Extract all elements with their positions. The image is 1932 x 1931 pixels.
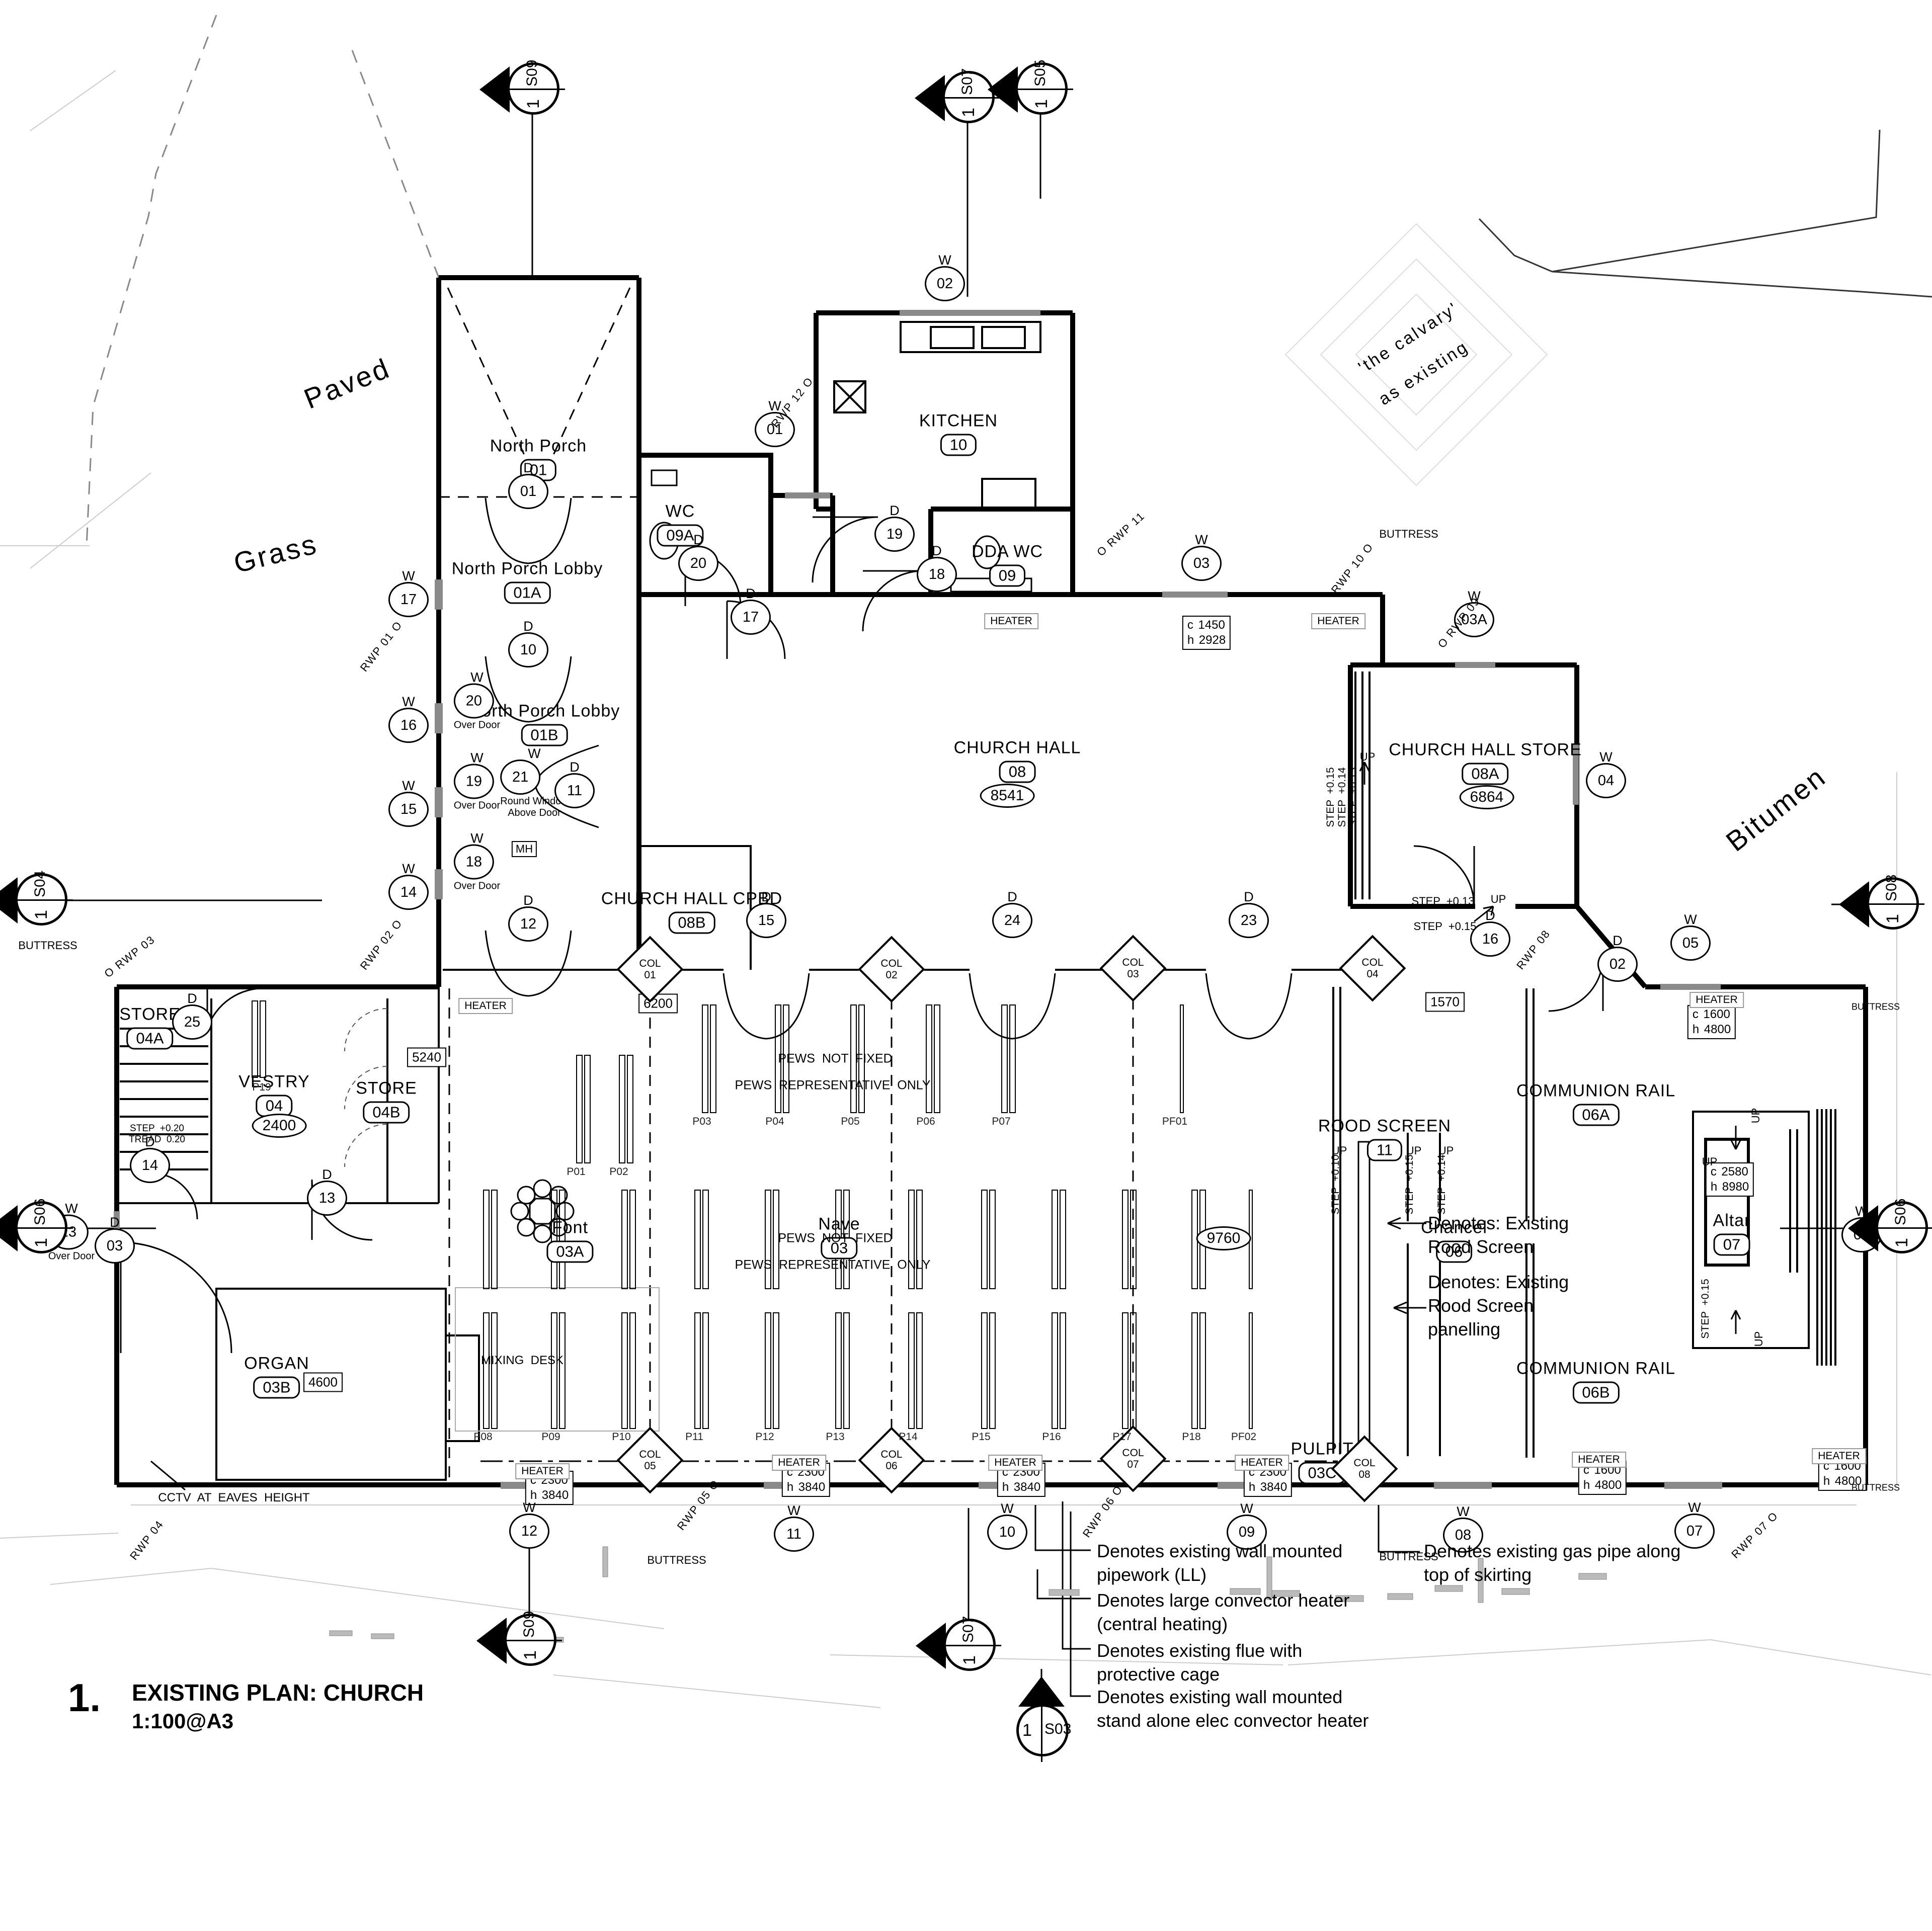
room-label: VESTRY04 <box>238 1072 309 1117</box>
pew <box>492 1190 497 1289</box>
column-marker: COL03 <box>1109 945 1157 992</box>
door-marker: D18 <box>917 545 957 592</box>
pew <box>492 1313 497 1429</box>
section-number: 1 <box>524 99 543 109</box>
room-label: COMMUNION RAIL06B <box>1516 1359 1675 1404</box>
window-number: 03 <box>1181 546 1222 581</box>
door-letter: D <box>95 1216 135 1228</box>
pew <box>627 1055 633 1163</box>
heater-label: HEATER <box>1689 992 1744 1008</box>
pew <box>836 1313 841 1429</box>
note-text: TREAD 0.20 <box>129 1134 185 1145</box>
note-text: PEWS REPRESENTATIVE ONLY <box>735 1078 931 1093</box>
window-marker: W10 <box>987 1502 1027 1550</box>
room-tag: 11 <box>1367 1139 1402 1161</box>
room-label: STORE04A <box>119 1005 181 1050</box>
section-number: 1 <box>1883 914 1903 923</box>
pew <box>1052 1313 1058 1429</box>
note-text: CCTV AT EAVES HEIGHT <box>158 1491 309 1505</box>
window-letter: W <box>454 671 500 684</box>
room-label: STORE04B <box>356 1079 417 1124</box>
pew <box>703 1313 708 1429</box>
door-marker: D19 <box>874 505 915 552</box>
window-number: 21 <box>500 760 540 795</box>
door-number: 17 <box>731 600 771 635</box>
pew <box>1060 1313 1066 1429</box>
door-number: 12 <box>508 906 548 942</box>
room-name: North Porch <box>490 437 587 456</box>
window-marker: W18Over Door <box>454 832 500 892</box>
window-marker: W14 <box>388 863 429 910</box>
note-text: STEP +0.15 <box>1700 1279 1712 1338</box>
window-marker: W02 <box>925 254 965 301</box>
section-sheet: S09 <box>521 1611 538 1638</box>
room-tag: 01B <box>521 724 568 746</box>
room-name: DDA WC <box>972 542 1043 562</box>
ch-dimension-box: c 1450h 2928 <box>1182 616 1231 650</box>
note-text: BUTTRESS <box>18 939 77 952</box>
pew <box>982 1313 987 1429</box>
door-number: 11 <box>554 773 595 808</box>
window-marker: W16 <box>388 696 429 743</box>
pew <box>252 1001 258 1077</box>
pew-label: P12 <box>755 1431 774 1443</box>
window-marker: W15 <box>388 780 429 827</box>
section-divider <box>500 89 565 90</box>
window-number: 10 <box>987 1515 1027 1550</box>
room-name: KITCHEN <box>919 411 998 431</box>
window-marker: W03 <box>1181 534 1222 581</box>
section-sheet: S06 <box>32 1199 49 1225</box>
pew <box>982 1190 987 1289</box>
column-marker: COL05 <box>626 1437 674 1484</box>
note-text: PEWS REPRESENTATIVE ONLY <box>735 1258 931 1273</box>
note-text: STEP +0.14 <box>1436 1154 1448 1214</box>
room-label: CHURCH HALL08 <box>954 738 1081 783</box>
column-marker: COL08 <box>1341 1445 1388 1492</box>
section-marker: 1S07 <box>916 1616 1021 1676</box>
pew <box>703 1190 708 1289</box>
pew <box>630 1190 635 1289</box>
window-letter: W <box>388 696 429 708</box>
area-oval: 6864 <box>1460 785 1514 809</box>
pew <box>926 1005 932 1113</box>
door-marker: D25 <box>172 992 212 1040</box>
room-label: DDA WC09 <box>972 542 1043 587</box>
window-number: 15 <box>388 792 429 827</box>
section-sheet: S03 <box>1044 1721 1071 1738</box>
room-name: CHURCH HALL STORE <box>1389 740 1582 760</box>
note-text: STEP +0.13 <box>1412 895 1475 908</box>
note-text: BUTTRESS <box>1379 528 1438 541</box>
section-marker: 1S09 <box>476 1611 582 1671</box>
window-letter: W <box>500 747 569 760</box>
room-tag: 03B <box>253 1377 300 1399</box>
door-letter: D <box>554 761 595 773</box>
note-text: PEWS NOT FIXED <box>778 1052 892 1066</box>
door-number: 13 <box>307 1181 347 1216</box>
section-divider <box>497 1640 562 1641</box>
note-text: BUTTRESS <box>1852 1002 1900 1013</box>
section-marker: 1S06 <box>0 1198 93 1258</box>
room-name: STORE <box>119 1005 181 1025</box>
note-text: BUTTRESS <box>647 1554 706 1567</box>
door-number: 18 <box>917 557 957 592</box>
room-name: WC <box>657 502 703 522</box>
note-text: UP <box>1360 750 1376 764</box>
pew-label: P13 <box>826 1431 844 1443</box>
pew <box>710 1005 716 1113</box>
window-marker: W04 <box>1586 751 1626 798</box>
column-id: COL06 <box>880 1449 902 1472</box>
pew <box>1122 1313 1128 1429</box>
window-number: 05 <box>1670 926 1711 961</box>
room-tag: 06B <box>1572 1382 1619 1404</box>
door-letter: D <box>678 534 718 546</box>
window-letter: W <box>509 1501 549 1514</box>
note-text: UP <box>1332 1144 1347 1157</box>
pew <box>934 1005 940 1113</box>
section-sheet: S06 <box>1892 1199 1909 1225</box>
pew <box>630 1313 635 1429</box>
window-letter: W <box>454 832 500 845</box>
room-name: Font <box>546 1218 593 1238</box>
room-name: ORGAN <box>244 1354 309 1374</box>
pew <box>1249 1313 1252 1429</box>
window-note: Over Door <box>454 800 500 812</box>
note-text: UP <box>1438 1144 1454 1157</box>
note-text: STEP +0.10 <box>1330 1154 1342 1214</box>
door-marker: D10 <box>508 620 548 667</box>
window-letter: W <box>1443 1505 1483 1518</box>
door-letter: D <box>992 891 1032 903</box>
ch-dimension-box: c 1600h 4800 <box>1687 1005 1736 1039</box>
legend-item: Denotes large convector heater (central … <box>1097 1588 1349 1636</box>
pew-label: P04 <box>765 1116 784 1128</box>
room-label: CHURCH HALL STORE08A <box>1389 740 1582 785</box>
pew-label: P08 <box>473 1431 492 1443</box>
section-divider <box>936 1645 1001 1646</box>
pew <box>702 1005 708 1113</box>
room-tag: 09 <box>989 565 1025 587</box>
door-number: 10 <box>508 632 548 667</box>
room-label: Altar07 <box>1713 1211 1751 1256</box>
pew-label: P05 <box>841 1116 859 1128</box>
room-name: North Porch Lobby <box>452 559 603 579</box>
note-text: UP <box>1702 1155 1718 1168</box>
section-marker: 1S04 <box>0 870 93 931</box>
door-number: 14 <box>130 1148 170 1183</box>
pew <box>585 1055 590 1163</box>
pew <box>559 1313 565 1429</box>
section-number: 1 <box>1892 1238 1912 1247</box>
pew <box>917 1190 922 1289</box>
note-text: STEP +0.20 <box>130 1123 184 1134</box>
pew <box>1180 1005 1183 1113</box>
pew-label: P19 <box>252 1081 271 1094</box>
pew-label: P07 <box>992 1116 1010 1128</box>
pew-label: P10 <box>612 1431 630 1443</box>
drawing-title: EXISTING PLAN: CHURCH <box>132 1679 424 1706</box>
note-text: UP <box>1406 1144 1422 1157</box>
room-tag: 04A <box>126 1028 173 1050</box>
section-sheet: S07 <box>960 1616 977 1643</box>
window-letter: W <box>774 1504 814 1517</box>
pew <box>260 1001 266 1077</box>
column-id: COL01 <box>639 958 661 981</box>
section-marker: 1S09 <box>479 59 585 120</box>
column-id: COL02 <box>880 958 902 981</box>
pew-label: PF02 <box>1231 1431 1256 1443</box>
pew <box>990 1313 995 1429</box>
pew <box>844 1313 849 1429</box>
window-letter: W <box>454 752 500 764</box>
door-letter: D <box>508 894 548 906</box>
door-number: 02 <box>1597 947 1638 982</box>
window-letter: W <box>388 863 429 875</box>
column-marker: COL01 <box>626 946 674 993</box>
window-number: 04 <box>1586 763 1626 798</box>
window-marker: W19Over Door <box>454 752 500 812</box>
door-marker: D23 <box>1229 891 1269 938</box>
door-marker: D13 <box>307 1168 347 1216</box>
pew-label: P06 <box>916 1116 935 1128</box>
section-sheet: S09 <box>524 60 541 87</box>
note-text: STEP +0.15 <box>1404 1154 1416 1214</box>
section-number: 1 <box>32 910 51 919</box>
note-text: MIXING DESK <box>481 1354 563 1368</box>
note-text: PEWS NOT FIXED <box>778 1231 892 1246</box>
door-number: 03 <box>95 1228 135 1264</box>
room-tag: 08 <box>999 761 1035 783</box>
window-note: Over Door <box>454 881 500 892</box>
room-tag: 03A <box>546 1241 593 1263</box>
pew <box>484 1313 489 1429</box>
heater-label: HEATER <box>984 613 1038 629</box>
door-number: 23 <box>1229 903 1269 938</box>
pew <box>773 1313 779 1429</box>
pew <box>619 1055 625 1163</box>
dimension-box: 1570 <box>1425 992 1465 1012</box>
column-id: COL07 <box>1122 1447 1144 1470</box>
pew <box>1060 1190 1066 1289</box>
pew <box>765 1190 771 1289</box>
window-marker: W12 <box>509 1501 549 1549</box>
note-text: MH <box>512 841 537 857</box>
note-text: STEP +0.15 <box>1414 920 1477 933</box>
pew <box>551 1313 557 1429</box>
window-marker: W05 <box>1670 913 1711 961</box>
section-number: 1 <box>1022 1721 1032 1740</box>
section-number: 1 <box>521 1650 540 1660</box>
note-text: UP <box>1749 1108 1762 1124</box>
room-tag: 07 <box>1714 1234 1750 1256</box>
pew <box>695 1313 700 1429</box>
room-tag: 01A <box>504 582 550 604</box>
pew <box>1192 1313 1197 1429</box>
window-number: 02 <box>925 266 965 301</box>
room-name: COMMUNION RAIL <box>1516 1359 1675 1379</box>
window-letter: W <box>925 254 965 266</box>
section-sheet: S04 <box>32 871 49 897</box>
section-marker: 1S08 <box>1839 874 1932 935</box>
heater-label: HEATER <box>1311 613 1365 629</box>
room-name: ROOD SCREEN <box>1318 1117 1451 1136</box>
door-letter: D <box>874 505 915 517</box>
drawing-number: 1. <box>68 1675 101 1721</box>
pew-label: P14 <box>899 1431 917 1443</box>
pew <box>909 1190 914 1289</box>
window-note: Over Door <box>454 720 500 731</box>
door-number: 20 <box>678 546 718 581</box>
window-number: 11 <box>774 1517 814 1552</box>
pew-label: P17 <box>1112 1431 1131 1443</box>
window-marker: W17 <box>388 570 429 617</box>
heater-label: HEATER <box>772 1455 826 1471</box>
window-number: 17 <box>388 582 429 617</box>
area-oval: 2400 <box>252 1114 307 1138</box>
section-sheet: S08 <box>1883 875 1900 901</box>
window-number: 18 <box>454 845 494 880</box>
note-text: STEP +0.13 <box>1347 767 1359 827</box>
section-marker: 1S05 <box>988 59 1093 120</box>
pew-label: P18 <box>1182 1431 1200 1443</box>
window-number: 19 <box>454 764 494 799</box>
room-name: COMMUNION RAIL <box>1516 1081 1675 1101</box>
pew <box>484 1190 489 1289</box>
room-label: COMMUNION RAIL06A <box>1516 1081 1675 1126</box>
door-letter: D <box>731 587 771 600</box>
heater-label: HEATER <box>1235 1455 1289 1471</box>
door-marker: D12 <box>508 894 548 942</box>
section-divider <box>1868 1227 1932 1229</box>
door-letter: D <box>307 1168 347 1181</box>
door-marker: D17 <box>731 587 771 635</box>
pew <box>1122 1190 1128 1289</box>
window-marker: W20Over Door <box>454 671 500 731</box>
pew <box>577 1055 582 1163</box>
section-number: 1 <box>960 1655 980 1665</box>
door-marker: D11 <box>554 761 595 808</box>
window-letter: W <box>388 570 429 582</box>
window-letter: W <box>1181 534 1222 546</box>
door-marker: D03 <box>95 1216 135 1264</box>
note-text: STEP +0.14 <box>1336 767 1348 827</box>
door-marker: D02 <box>1597 935 1638 982</box>
legend-item: Denotes: Existing Rood Screen <box>1428 1211 1569 1258</box>
column-id: COL03 <box>1122 957 1144 980</box>
window-letter: W <box>1674 1501 1715 1514</box>
legend-item: Denotes existing gas pipe along top of s… <box>1424 1539 1680 1586</box>
window-number: 14 <box>388 875 429 910</box>
room-name: VESTRY <box>238 1072 309 1092</box>
section-divider <box>1859 903 1924 905</box>
window-letter: W <box>1670 913 1711 926</box>
door-number: 15 <box>746 903 786 938</box>
door-letter: D <box>1597 935 1638 947</box>
legend-item: Denotes existing wall mounted pipework (… <box>1097 1539 1342 1586</box>
window-number: 16 <box>388 708 429 743</box>
door-letter: D <box>508 462 548 474</box>
dimension-box: 5240 <box>407 1048 446 1067</box>
area-oval: 9760 <box>1196 1226 1251 1250</box>
pew <box>990 1190 995 1289</box>
column-marker: COL04 <box>1349 945 1396 992</box>
window-number: 12 <box>509 1514 549 1549</box>
door-number: 01 <box>508 474 548 509</box>
section-number: 1 <box>1032 99 1052 109</box>
legend-item: Denotes existing flue with protective ca… <box>1097 1639 1302 1686</box>
pew <box>1200 1313 1205 1429</box>
room-tag: 08B <box>668 912 715 934</box>
section-marker: 1S03 <box>1011 1676 1072 1782</box>
room-tag: 10 <box>940 434 977 456</box>
door-marker: D15 <box>746 891 786 938</box>
pew <box>622 1190 627 1289</box>
section-divider <box>8 899 73 901</box>
heater-label: HEATER <box>1572 1452 1626 1468</box>
room-tag: 08A <box>1462 763 1508 785</box>
legend-item: Denotes: Existing Rood Screen panelling <box>1428 1270 1569 1341</box>
pew-label: P16 <box>1042 1431 1061 1443</box>
section-number: 1 <box>32 1238 51 1247</box>
room-label: KITCHEN10 <box>919 411 998 456</box>
pew <box>909 1313 914 1429</box>
room-name: STORE <box>356 1079 417 1099</box>
window-number: 20 <box>454 684 494 719</box>
door-number: 25 <box>172 1004 212 1040</box>
note-text: UP <box>1752 1331 1765 1347</box>
room-tag: 06A <box>1572 1104 1619 1126</box>
door-marker: D20 <box>678 534 718 581</box>
pew-label: P09 <box>541 1431 560 1443</box>
door-letter: D <box>917 545 957 557</box>
window-letter: W <box>1586 751 1626 763</box>
room-name: CHURCH HALL <box>954 738 1081 758</box>
section-number: 1 <box>959 108 979 117</box>
section-sheet: S05 <box>1032 60 1049 87</box>
pew-label: P03 <box>692 1116 711 1128</box>
room-label: Font03A <box>546 1218 593 1263</box>
pew-label: P02 <box>609 1166 628 1178</box>
heater-label: HEATER <box>458 998 513 1014</box>
section-divider <box>1041 1697 1042 1762</box>
section-divider <box>8 1227 73 1229</box>
note-text: STEP +0.15 <box>1325 767 1337 827</box>
window-letter: W <box>388 780 429 792</box>
heater-label: HEATER <box>515 1463 570 1479</box>
window-marker: W11 <box>774 1504 814 1552</box>
pew <box>1052 1190 1058 1289</box>
room-label: ORGAN03B <box>244 1354 309 1399</box>
section-marker: 1S06 <box>1848 1198 1932 1258</box>
room-label: North Porch Lobby01A <box>452 559 603 604</box>
door-marker: D01 <box>508 462 548 509</box>
column-id: COL05 <box>639 1449 661 1472</box>
column-marker: COL06 <box>868 1437 915 1484</box>
door-letter: D <box>508 620 548 632</box>
pew <box>1002 1005 1007 1113</box>
column-id: COL04 <box>1361 957 1383 980</box>
area-oval: 8541 <box>980 784 1035 808</box>
dimension-box: 4600 <box>303 1373 343 1392</box>
door-letter: D <box>1229 891 1269 903</box>
pew-label: P01 <box>567 1166 585 1178</box>
drawing-scale: 1:100@A3 <box>132 1709 233 1733</box>
window-letter: W <box>1227 1502 1267 1515</box>
pew <box>622 1313 627 1429</box>
door-number: 24 <box>992 903 1032 938</box>
